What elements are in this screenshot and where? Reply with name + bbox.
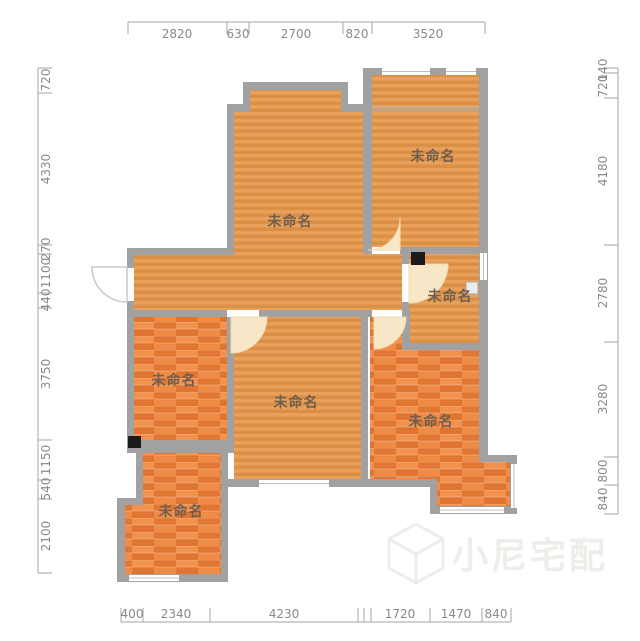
wall: [127, 310, 227, 317]
dim-label: 1720: [385, 607, 416, 621]
cube-logo-icon: [389, 524, 443, 583]
dim-label: 2820: [162, 27, 193, 41]
dim-label: 840: [596, 488, 610, 511]
watermark-text: 小尼宅配: [452, 535, 608, 577]
wall: [221, 453, 228, 582]
window: [480, 253, 487, 280]
dim-label: 1470: [441, 607, 472, 621]
beam: [372, 106, 479, 112]
wall: [259, 310, 372, 317]
room-label: 未命名: [409, 413, 454, 430]
dim-label: 630: [227, 27, 250, 41]
dim-label: 440: [39, 289, 53, 312]
dim-label: 3750: [39, 359, 53, 390]
dim-label: 3520: [413, 27, 444, 41]
window: [129, 575, 179, 581]
dim-label: 820: [346, 27, 369, 41]
watermark: 小尼宅配: [389, 524, 608, 583]
wall: [363, 68, 372, 254]
wall: [361, 479, 437, 487]
dim-label: 540: [39, 478, 53, 501]
flue-marker: [128, 436, 141, 448]
dim-label: 2700: [281, 27, 312, 41]
wall: [117, 498, 125, 582]
wall: [361, 317, 368, 481]
dim-label: 2340: [161, 607, 192, 621]
wall: [227, 104, 234, 255]
room-label: 未命名: [428, 288, 473, 305]
dim-label: 720: [596, 75, 610, 98]
window: [259, 480, 329, 487]
flue-marker: [411, 252, 425, 265]
window: [440, 507, 504, 513]
dim-label: 720: [39, 69, 53, 92]
room-label: 未命名: [152, 372, 197, 389]
room-label: 未命名: [268, 213, 313, 230]
wall: [402, 254, 409, 264]
dim-label: 800: [596, 460, 610, 483]
entry-door-arc: [92, 267, 127, 302]
dim-label: 2100: [39, 521, 53, 552]
dim-label: 3280: [596, 384, 610, 415]
dim-label: 400: [121, 607, 144, 621]
dim-label: 2780: [596, 278, 610, 309]
window: [382, 68, 430, 75]
floor-plan-svg: 未命名 未命名 未命名 未命名 未命名 未命名 未命名: [0, 0, 640, 641]
wall: [136, 453, 143, 499]
dim-label: 4230: [269, 607, 300, 621]
wall: [127, 248, 134, 268]
dim-label: 270: [39, 238, 53, 261]
room-label: 未命名: [411, 148, 456, 165]
dim-label: 4180: [596, 156, 610, 187]
wall: [243, 82, 347, 90]
room-label: 未命名: [159, 503, 204, 520]
dim-label: 4330: [39, 154, 53, 185]
room-label: 未命名: [274, 394, 319, 411]
dim-label: 840: [485, 607, 508, 621]
floor-plan-canvas: 未命名 未命名 未命名 未命名 未命名 未命名 未命名: [0, 0, 640, 641]
wall: [127, 440, 234, 453]
dim-label: 1100: [39, 258, 53, 289]
wall: [127, 317, 134, 448]
window: [511, 464, 517, 508]
living-room-floor: [134, 90, 402, 310]
window: [446, 68, 476, 75]
wall: [403, 343, 488, 350]
wall: [127, 248, 228, 255]
dim-label: 1150: [39, 445, 53, 476]
